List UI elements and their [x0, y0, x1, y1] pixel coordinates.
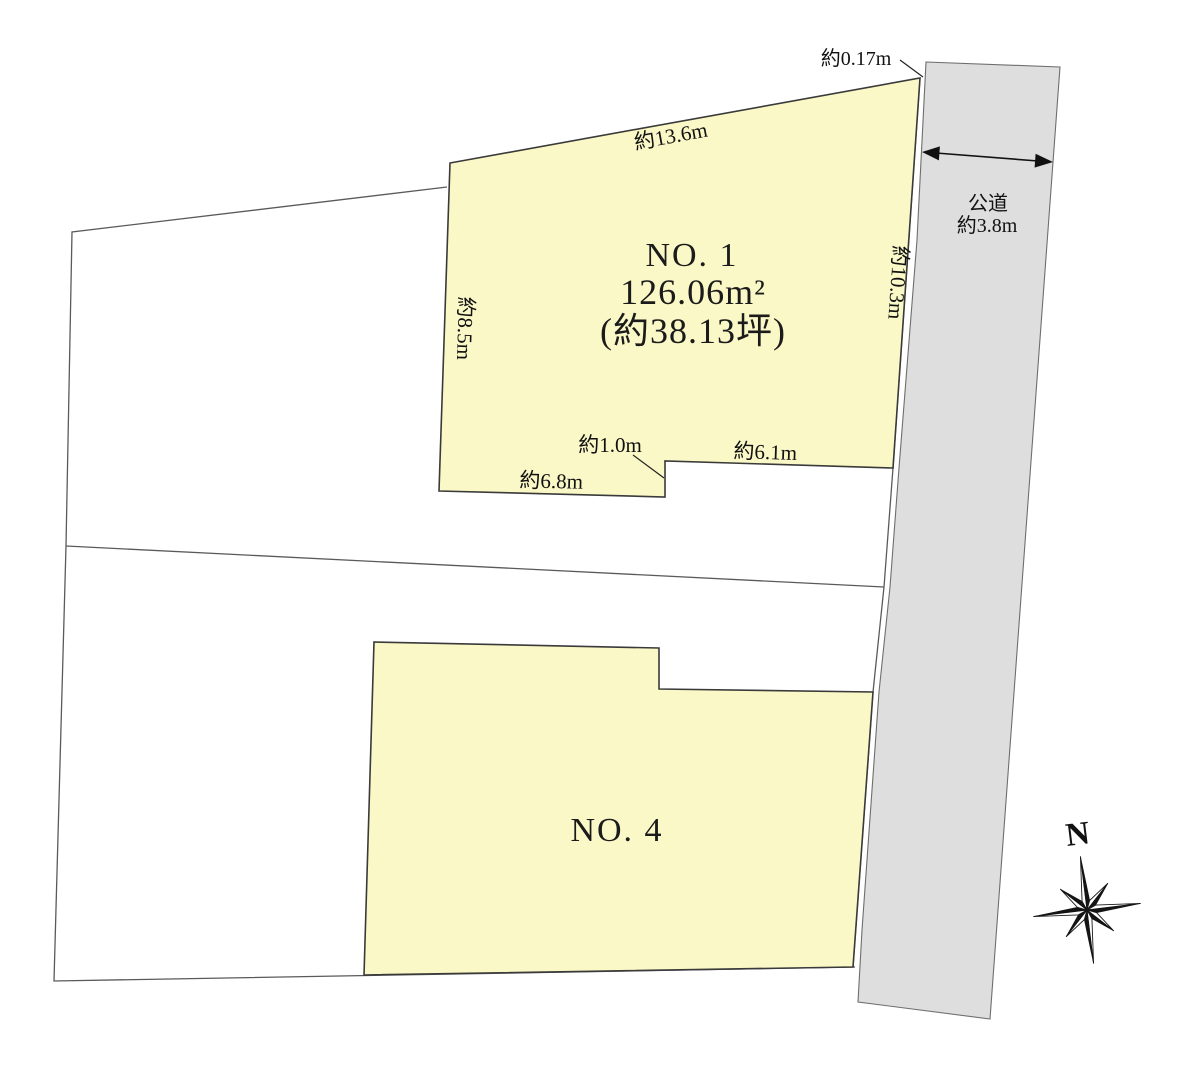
dim-step: 約1.0m: [578, 433, 642, 457]
plot-1-area-tsubo: (約38.13坪): [600, 311, 786, 351]
plot-map-canvas: 約13.6m 約0.17m 約10.3m 約8.5m 約1.0m 約6.1m 約…: [0, 0, 1200, 1069]
dim-left-edge: 約8.5m: [452, 296, 478, 360]
plot-1-area-m2: 126.06m²: [620, 272, 766, 312]
middle-boundary-line: [66, 546, 884, 587]
compass-rose-icon: N: [1022, 810, 1147, 970]
road-width-label: 約3.8m: [957, 214, 1018, 237]
road-name-label: 公道: [968, 192, 1008, 215]
plot-4-name: NO. 4: [570, 812, 663, 849]
dim-bottom-left-edge: 約6.8m: [519, 468, 583, 494]
plot-1-name: NO. 1: [645, 237, 738, 274]
plot-4-polygon: [364, 642, 873, 975]
setback-leader-line: [900, 60, 923, 77]
compass-north-label: N: [1064, 815, 1092, 854]
land-plot-diagram: 約13.6m 約0.17m 約10.3m 約8.5m 約1.0m 約6.1m 約…: [0, 0, 1200, 1069]
dim-bottom-right-edge: 約6.1m: [733, 439, 797, 465]
dim-setback: 約0.17m: [821, 47, 892, 70]
